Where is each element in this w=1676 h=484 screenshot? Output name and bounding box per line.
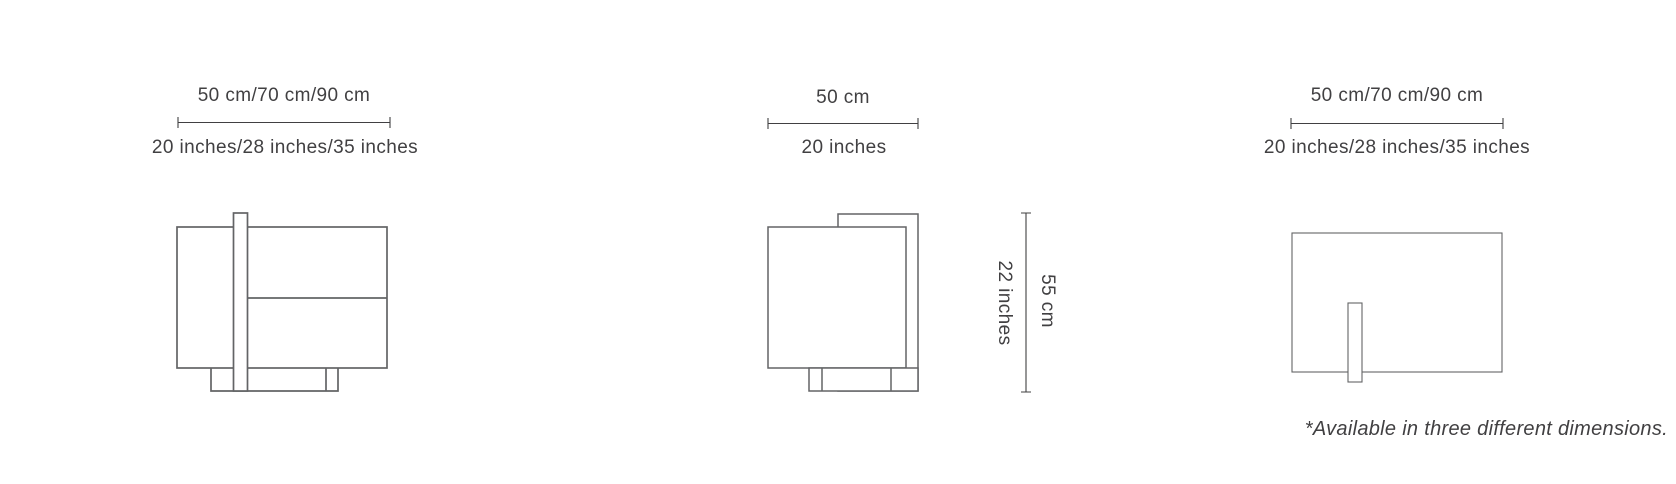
availability-footnote: *Available in three different dimensions…	[1305, 418, 1668, 441]
top-plank	[1348, 303, 1362, 382]
side-height-cm-label: 55 cm	[1036, 274, 1058, 328]
drawings-layer	[0, 0, 1676, 484]
front-width-inches-label: 20 inches/28 inches/35 inches	[152, 137, 418, 159]
top-view-drawing	[1292, 233, 1502, 382]
front-plank	[234, 213, 248, 391]
top-width-inches-label: 20 inches/28 inches/35 inches	[1264, 137, 1530, 159]
side-height-dimension-line	[1021, 213, 1031, 392]
side-body	[768, 227, 906, 368]
front-width-cm-label: 50 cm/70 cm/90 cm	[198, 85, 371, 107]
side-view-drawing	[768, 214, 918, 391]
front-width-dimension-line	[178, 117, 390, 128]
top-width-cm-label: 50 cm/70 cm/90 cm	[1311, 85, 1484, 107]
side-width-cm-label: 50 cm	[816, 87, 870, 109]
dimension-diagram: 50 cm/70 cm/90 cm 20 inches/28 inches/35…	[0, 0, 1676, 484]
side-width-inches-label: 20 inches	[802, 137, 887, 159]
front-plinth	[211, 368, 338, 391]
side-base	[809, 368, 918, 391]
top-width-dimension-line	[1291, 118, 1503, 129]
top-body	[1292, 233, 1502, 372]
side-height-inches-label: 22 inches	[993, 261, 1015, 346]
side-width-dimension-line	[768, 118, 918, 129]
front-view-drawing	[177, 213, 387, 391]
